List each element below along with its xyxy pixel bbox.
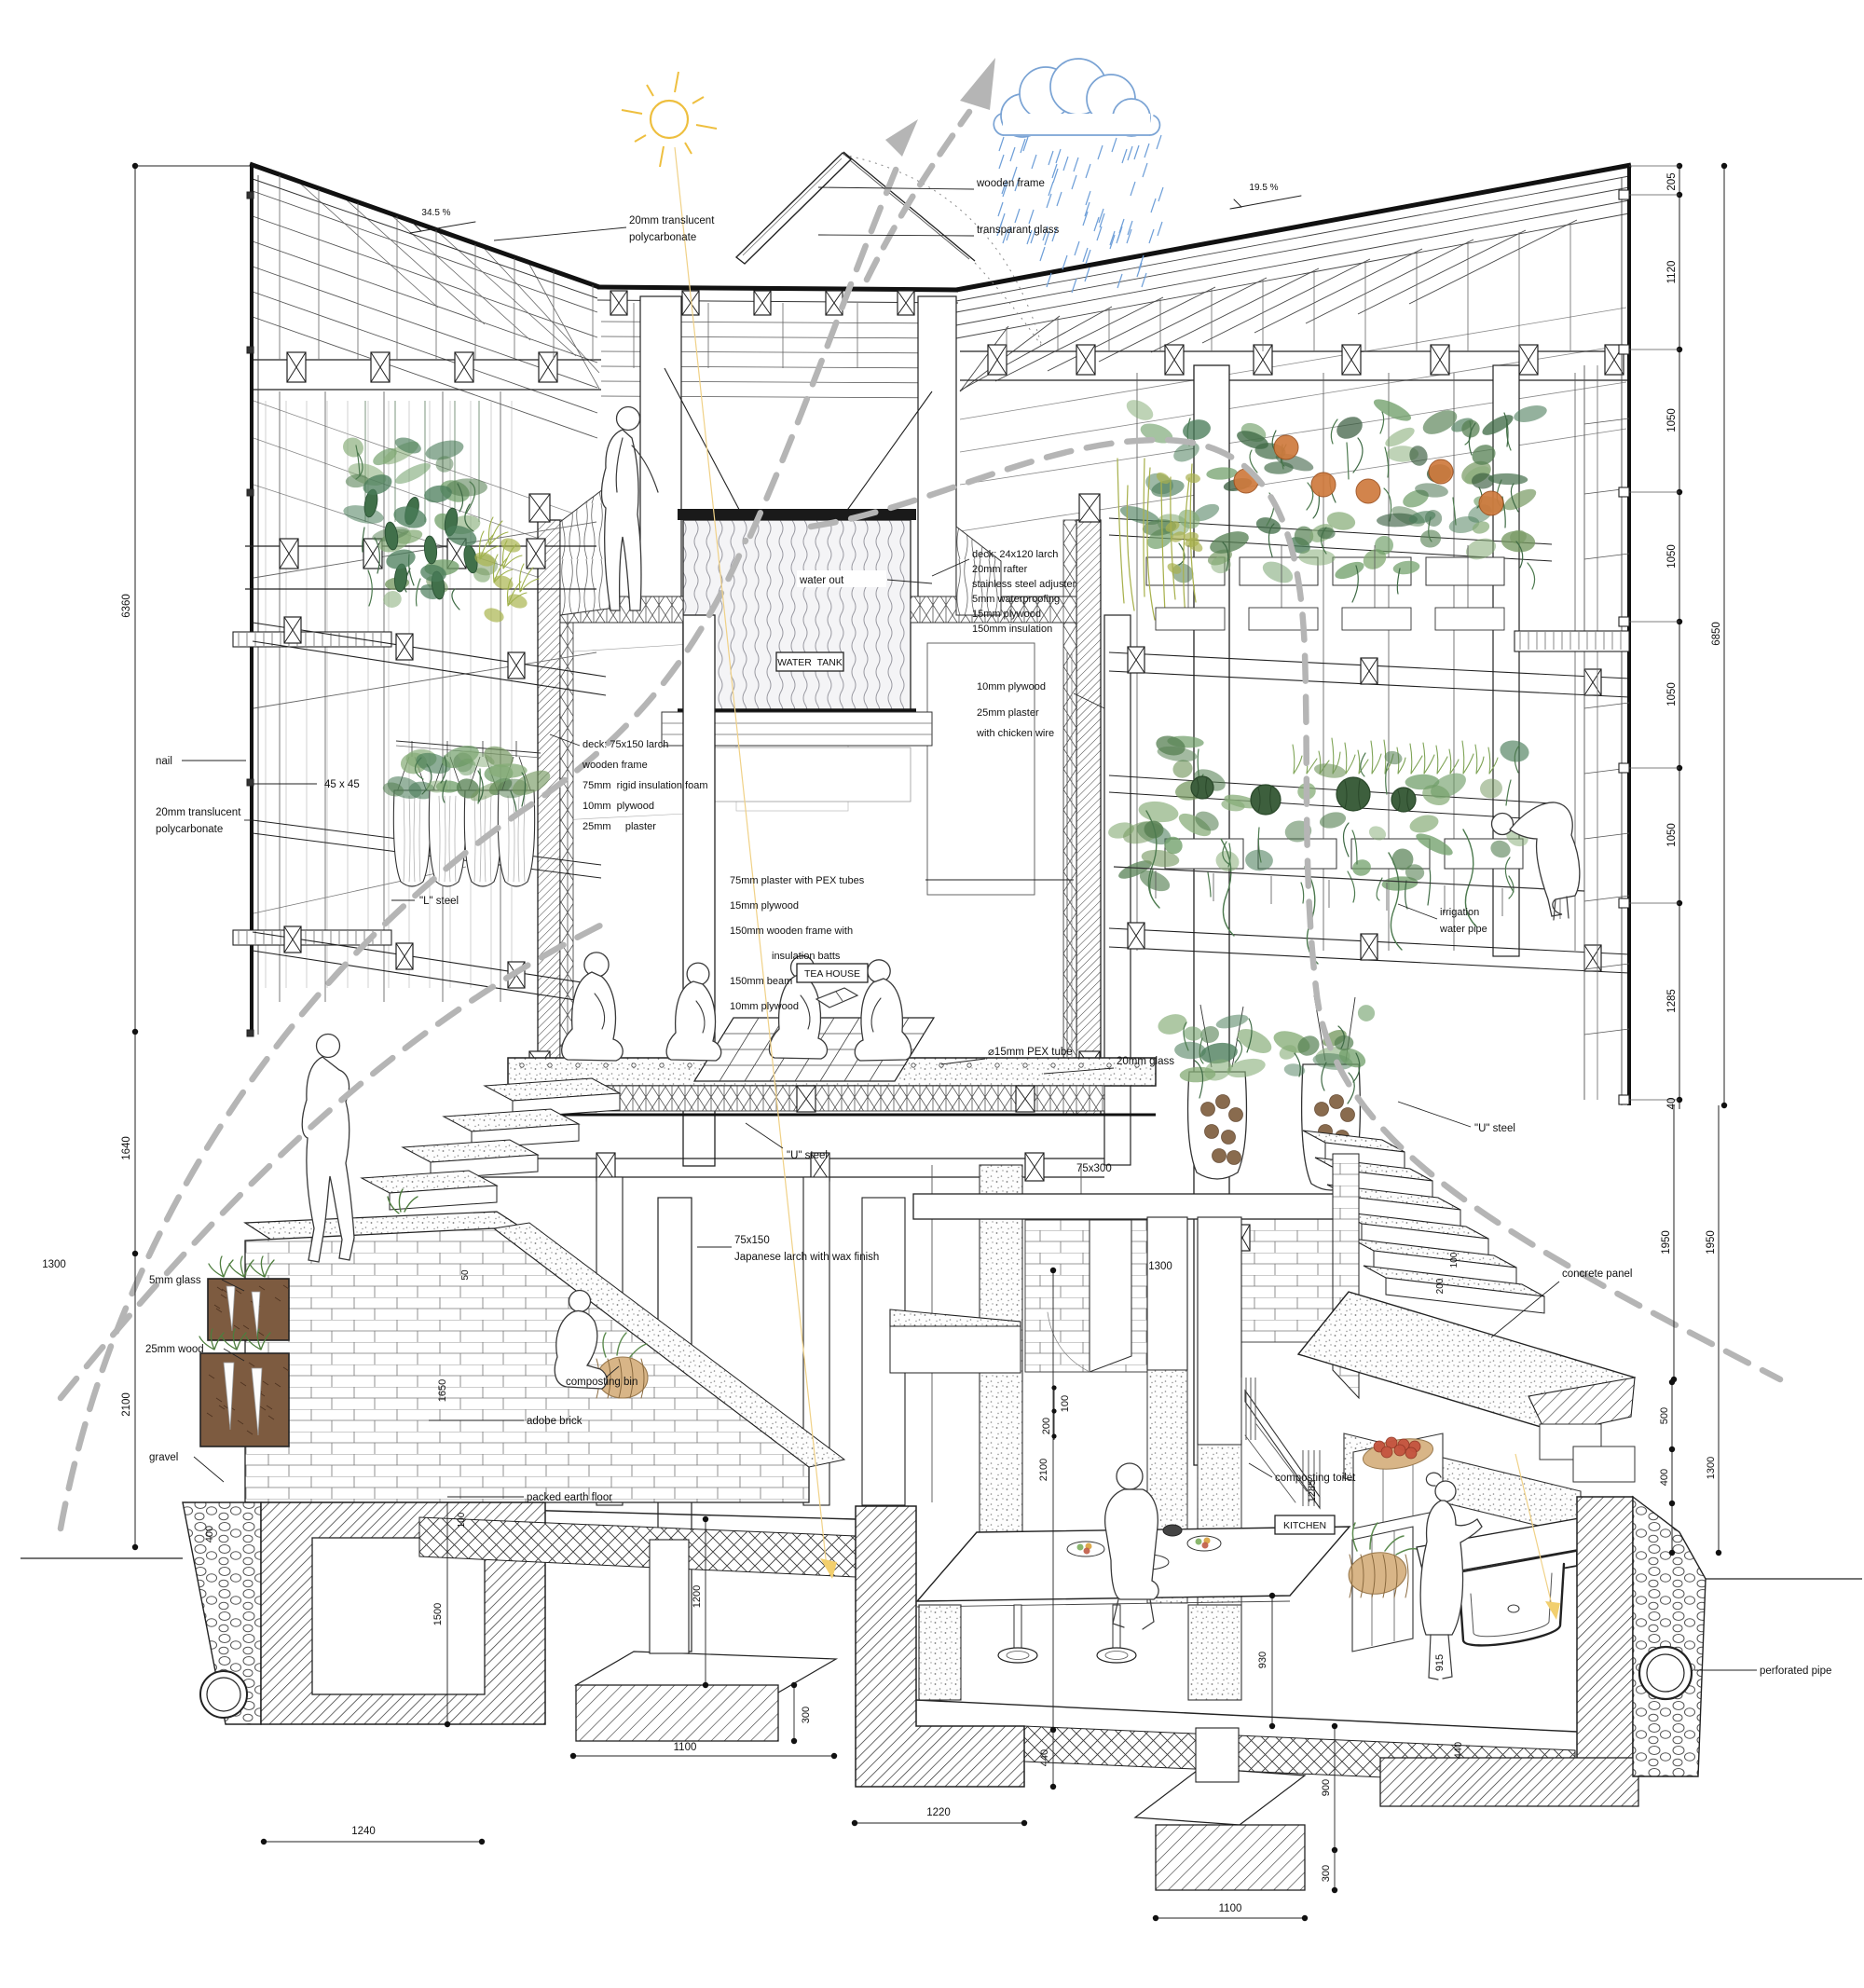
svg-text:transparant glass: transparant glass	[977, 225, 1059, 236]
svg-text:34.5 %: 34.5 %	[421, 208, 450, 218]
svg-text:100: 100	[1449, 1252, 1460, 1268]
svg-text:composting bin: composting bin	[566, 1377, 637, 1388]
svg-text:2100: 2100	[121, 1392, 132, 1417]
svg-text:stainless steel adjuster: stainless steel adjuster	[972, 579, 1076, 590]
svg-text:900: 900	[1321, 1779, 1332, 1796]
svg-text:150mm beam: 150mm beam	[730, 976, 792, 987]
svg-text:deck: 75x150 larch: deck: 75x150 larch	[582, 739, 668, 750]
svg-text:1100: 1100	[1219, 1903, 1242, 1914]
svg-text:1950: 1950	[1661, 1230, 1672, 1254]
svg-text:adobe brick: adobe brick	[527, 1416, 582, 1427]
svg-text:wooden frame: wooden frame	[976, 178, 1045, 189]
svg-text:25mm plaster: 25mm plaster	[977, 707, 1039, 719]
svg-text:1200: 1200	[692, 1585, 703, 1608]
svg-text:1050: 1050	[1666, 544, 1678, 569]
svg-text:400: 400	[204, 1526, 215, 1542]
svg-text:WATER TANK: WATER TANK	[777, 657, 843, 668]
svg-text:water pipe: water pipe	[1439, 924, 1487, 935]
svg-text:1285: 1285	[1666, 989, 1678, 1013]
svg-text:1220: 1220	[926, 1807, 951, 1818]
svg-text:1050: 1050	[1666, 682, 1678, 706]
svg-text:10mm plywood: 10mm plywood	[730, 1001, 799, 1012]
svg-text:2100: 2100	[1038, 1459, 1049, 1481]
svg-text:20mm rafter: 20mm rafter	[972, 564, 1028, 575]
svg-text:100: 100	[457, 1512, 467, 1528]
svg-text:1650: 1650	[437, 1379, 448, 1402]
svg-text:25mm wood: 25mm wood	[145, 1344, 204, 1355]
svg-text:nail: nail	[156, 756, 172, 767]
svg-text:440: 440	[1453, 1742, 1464, 1759]
svg-text:915: 915	[1434, 1654, 1446, 1671]
svg-text:"U" steel: "U" steel	[787, 1150, 828, 1161]
svg-text:10mm plywood: 10mm plywood	[977, 681, 1046, 692]
svg-text:packed earth floor: packed earth floor	[527, 1492, 612, 1503]
svg-text:perforated pipe: perforated pipe	[1760, 1666, 1831, 1677]
svg-text:440: 440	[1039, 1749, 1050, 1766]
svg-text:1120: 1120	[1666, 261, 1678, 284]
svg-text:100: 100	[1060, 1395, 1071, 1412]
svg-text:6360: 6360	[121, 594, 132, 618]
svg-text:400: 400	[1659, 1469, 1670, 1486]
svg-text:150mm wooden frame with: 150mm wooden frame with	[730, 925, 853, 937]
svg-text:wooden frame: wooden frame	[582, 760, 648, 771]
svg-text:75x150: 75x150	[734, 1235, 770, 1246]
svg-text:1300: 1300	[1148, 1261, 1172, 1272]
svg-text:45 x 45: 45 x 45	[324, 779, 360, 790]
svg-text:50: 50	[460, 1269, 471, 1281]
svg-text:insulation batts: insulation batts	[772, 951, 841, 962]
svg-text:20mm glass: 20mm glass	[1117, 1056, 1174, 1067]
svg-text:1500: 1500	[432, 1603, 444, 1625]
svg-text:"L" steel: "L" steel	[419, 896, 459, 907]
svg-text:200: 200	[1435, 1278, 1446, 1294]
svg-text:"U" steel: "U" steel	[1474, 1123, 1515, 1134]
svg-text:40: 40	[1666, 1098, 1678, 1110]
svg-text:75x300: 75x300	[1076, 1163, 1112, 1174]
svg-text:water out: water out	[799, 575, 844, 586]
svg-text:⌀15mm PEX tube: ⌀15mm PEX tube	[988, 1047, 1073, 1058]
svg-text:6850: 6850	[1711, 622, 1722, 646]
svg-text:75mm plaster with PEX tubes: 75mm plaster with PEX tubes	[730, 875, 865, 886]
svg-text:deck: 24x120 larch: deck: 24x120 larch	[972, 549, 1058, 560]
svg-text:300: 300	[1321, 1865, 1332, 1882]
svg-text:polycarbonate: polycarbonate	[629, 232, 696, 243]
svg-text:1100: 1100	[674, 1742, 697, 1753]
svg-text:200: 200	[1041, 1418, 1052, 1434]
svg-text:205: 205	[1666, 172, 1678, 190]
svg-text:20mm translucent: 20mm translucent	[629, 215, 715, 226]
svg-text:1050: 1050	[1666, 408, 1678, 432]
svg-text:1950: 1950	[1706, 1230, 1717, 1254]
svg-text:19.5 %: 19.5 %	[1249, 183, 1278, 193]
svg-text:Japanese larch with wax finish: Japanese larch with wax finish	[734, 1252, 879, 1263]
svg-text:930: 930	[1257, 1652, 1268, 1668]
svg-text:5mm waterproofing: 5mm waterproofing	[972, 594, 1060, 605]
svg-text:polycarbonate: polycarbonate	[156, 824, 223, 835]
svg-text:KITCHEN: KITCHEN	[1283, 1520, 1326, 1531]
svg-text:150mm insulation: 150mm insulation	[972, 624, 1052, 635]
svg-text:1050: 1050	[1666, 823, 1678, 847]
svg-text:gravel: gravel	[149, 1452, 178, 1463]
svg-text:1640: 1640	[121, 1136, 132, 1160]
svg-text:composting toilet: composting toilet	[1275, 1473, 1356, 1484]
svg-text:20mm translucent: 20mm translucent	[156, 807, 241, 818]
svg-text:10mm plywood: 10mm plywood	[582, 801, 654, 812]
svg-text:5mm glass: 5mm glass	[149, 1275, 201, 1286]
svg-text:500: 500	[1659, 1407, 1670, 1424]
svg-text:75mm rigid insulation foam: 75mm rigid insulation foam	[582, 780, 708, 791]
svg-text:15mm plywood: 15mm plywood	[730, 900, 799, 912]
svg-text:concrete panel: concrete panel	[1562, 1268, 1632, 1280]
svg-text:15mm plywood: 15mm plywood	[972, 609, 1041, 620]
svg-text:25mm plaster: 25mm plaster	[582, 821, 656, 832]
svg-text:300: 300	[801, 1707, 812, 1723]
svg-text:1300: 1300	[42, 1259, 66, 1270]
svg-text:irrigation: irrigation	[1440, 907, 1479, 918]
svg-text:with chicken wire: with chicken wire	[976, 728, 1054, 739]
svg-text:TEA HOUSE: TEA HOUSE	[804, 968, 860, 980]
svg-text:1300: 1300	[1706, 1457, 1717, 1479]
svg-text:1240: 1240	[351, 1826, 376, 1837]
